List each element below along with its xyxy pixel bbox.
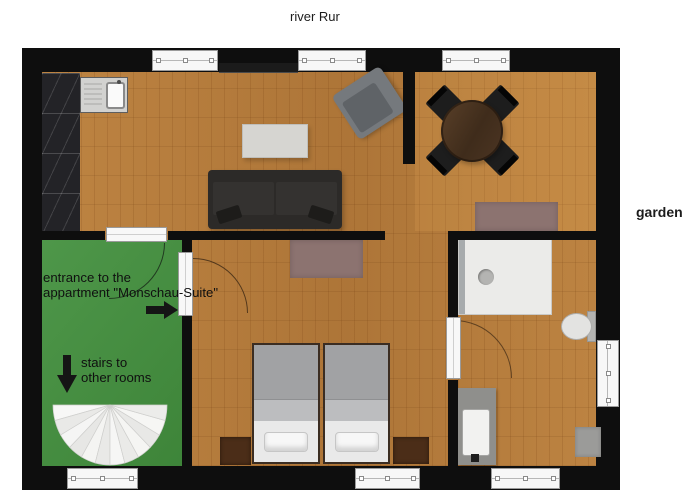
stairs-annotation-line2: other rooms [81,371,151,386]
entrance-door [106,227,167,242]
window-pane-mark [606,398,611,403]
river-label: river Rur [290,9,340,24]
window-pane-mark [474,58,479,63]
window-pane-mark [501,58,506,63]
floor-plan-image: river Rur garden [0,0,700,500]
sink-faucet [117,80,121,84]
bathroom-door [446,317,461,379]
window-pane-mark [551,476,556,481]
spiral-staircase-icon [50,403,170,466]
window-pane-mark [129,476,134,481]
wall-bathroom-left-upper [448,231,458,318]
wall-bathroom-top [448,231,596,240]
wall-middle-center [168,231,385,240]
coffee-table [242,124,308,158]
window-pane-mark [606,344,611,349]
bed-blanket [254,345,318,400]
window-right [597,340,619,407]
window-bottom-1 [67,468,138,489]
sink-basin [106,82,125,109]
window-pane-mark [302,58,307,63]
bed-blanket-fold [254,400,318,421]
entrance-annotation-line1: entrance to the [43,271,218,286]
stairs-annotation-line1: stairs to [81,356,151,371]
window-pane-mark [330,58,335,63]
window-pane-mark [359,476,364,481]
garden-label: garden [636,204,683,220]
vanity-basin [462,409,490,456]
window-pane-mark [100,476,105,481]
window-pane-mark [446,58,451,63]
entrance-annotation: entrance to the appartment "Monschau-Sui… [43,271,218,301]
window-top-3 [442,50,510,71]
window-pane-mark [156,58,161,63]
window-pane-mark [357,58,362,63]
shower-drain [478,269,494,285]
window-pane-mark [71,476,76,481]
window-pane-mark [209,58,214,63]
rug-living [475,202,558,231]
bed-right [323,343,390,464]
tv-lowboard [219,63,298,73]
toilet [561,313,592,340]
kitchen-sink [80,77,128,113]
bed-pillow [264,432,308,452]
wall-middle-left [42,231,105,240]
vanity-sink [458,388,496,465]
wall-bathroom-left-lower [448,380,458,466]
nightstand-left [220,437,251,465]
sink-drainboard [84,83,102,107]
bed-pillow [335,432,379,452]
window-pane-mark [523,476,528,481]
bed-blanket-fold [325,400,388,421]
dining-table [441,100,503,162]
window-pane-mark [183,58,188,63]
window-bottom-3 [491,468,560,489]
window-pane-mark [411,476,416,481]
vanity-faucet [471,454,479,462]
kitchen-counter [42,73,80,233]
bath-mat [575,427,601,457]
arrow-down-icon [57,355,77,393]
shower [458,239,552,315]
bed-left [252,343,320,464]
sofa [208,170,342,229]
window-pane-mark [495,476,500,481]
nightstand-right [393,437,429,464]
window-pane-mark [606,371,611,376]
stairs-annotation: stairs to other rooms [81,356,151,386]
window-top-1 [152,50,218,71]
bed-blanket [325,345,388,400]
window-top-2 [298,50,366,71]
wall-dining-partition [403,72,415,164]
arrow-right-icon [146,301,178,319]
shower-glass-panel [459,240,465,314]
entrance-annotation-line2: appartment "Monschau-Suite" [43,286,218,301]
window-pane-mark [385,476,390,481]
rug-bedroom [290,240,363,278]
window-bottom-2 [355,468,420,489]
